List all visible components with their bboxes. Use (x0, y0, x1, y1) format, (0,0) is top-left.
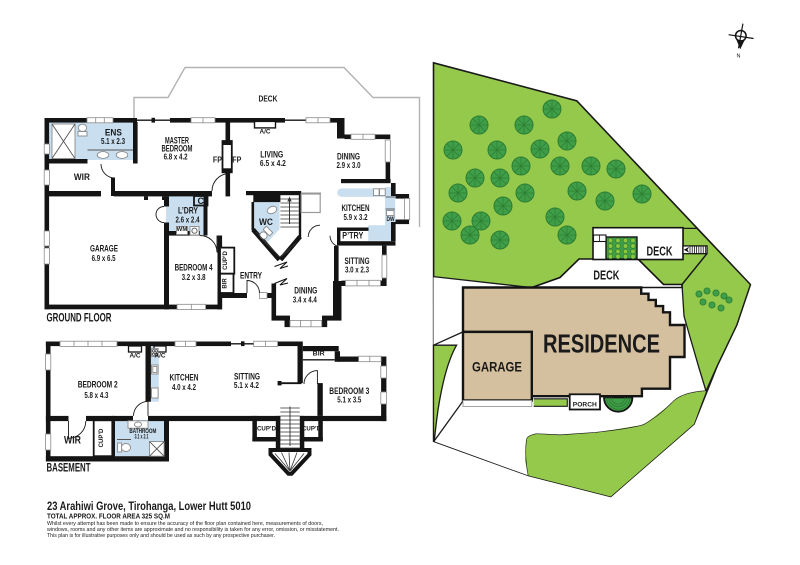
svg-text:GROUND FLOOR: GROUND FLOOR (47, 311, 112, 325)
svg-text:CUP’D: CUP’D (223, 251, 229, 270)
svg-text:CUP’D: CUP’D (302, 427, 322, 433)
svg-text:2.9 x 3.0: 2.9 x 3.0 (337, 161, 361, 170)
svg-text:BIR: BIR (223, 278, 229, 289)
svg-text:5.1 x 2.3: 5.1 x 2.3 (101, 137, 125, 146)
svg-text:This plan is for illustrative: This plan is for illustrative purposes o… (47, 533, 275, 539)
svg-text:5.1 x 4.2: 5.1 x 4.2 (234, 381, 259, 390)
svg-text:CUP’D: CUP’D (257, 427, 277, 433)
svg-text:N: N (737, 54, 741, 60)
svg-text:4.0 x 4.2: 4.0 x 4.2 (172, 383, 196, 392)
svg-text:ENS: ENS (105, 128, 122, 138)
svg-text:DW: DW (387, 217, 395, 223)
svg-text:GARAGE: GARAGE (90, 244, 118, 254)
svg-text:KITCHEN: KITCHEN (342, 203, 370, 213)
svg-text:BEDROOM 2: BEDROOM 2 (78, 380, 118, 390)
svg-text:3.1 x 2.1: 3.1 x 2.1 (135, 435, 149, 441)
svg-text:3.0 x 2.3: 3.0 x 2.3 (345, 266, 369, 275)
svg-text:WM: WM (177, 227, 188, 233)
svg-text:C: C (197, 196, 204, 206)
svg-text:SITTING: SITTING (345, 256, 370, 266)
svg-text:WC: WC (259, 217, 273, 227)
svg-text:5.8 x 4.3: 5.8 x 4.3 (84, 391, 108, 400)
svg-text:A/C: A/C (260, 130, 272, 136)
svg-text:DECK: DECK (593, 268, 619, 283)
svg-text:P’TRY: P’TRY (342, 230, 363, 240)
svg-text:CUP’D: CUP’D (99, 428, 105, 447)
svg-text:6.8 x 4.2: 6.8 x 4.2 (164, 153, 188, 162)
svg-text:A/C: A/C (155, 354, 167, 360)
svg-text:ENTRY: ENTRY (240, 271, 262, 281)
svg-text:PORCH: PORCH (573, 403, 597, 409)
svg-text:KITCHEN: KITCHEN (170, 373, 199, 383)
svg-text:BEDROOM 3: BEDROOM 3 (329, 386, 369, 396)
svg-text:DECK: DECK (259, 94, 279, 104)
svg-text:FP: FP (213, 156, 223, 165)
svg-text:5.9 x 3.2: 5.9 x 3.2 (344, 213, 368, 222)
svg-text:3.4 x 4.4: 3.4 x 4.4 (293, 296, 317, 305)
svg-text:BEDROOM 4: BEDROOM 4 (175, 263, 213, 273)
svg-text:RESIDENCE: RESIDENCE (543, 331, 660, 359)
svg-text:WIR: WIR (74, 172, 90, 182)
svg-text:3.2 x 3.8: 3.2 x 3.8 (182, 273, 206, 282)
svg-text:WIR: WIR (64, 435, 81, 447)
svg-text:TOTAL APPROX. FLOOR AREA 325 S: TOTAL APPROX. FLOOR AREA 325 SQ.M (47, 511, 170, 520)
svg-text:GARAGE: GARAGE (472, 360, 522, 375)
svg-text:DECK: DECK (647, 244, 673, 259)
svg-text:6.9 x 6.5: 6.9 x 6.5 (92, 254, 116, 263)
svg-text:DINING: DINING (294, 286, 317, 296)
svg-text:FP: FP (232, 156, 242, 165)
svg-text:5.1 x 3.5: 5.1 x 3.5 (337, 396, 361, 405)
svg-text:6.5 x 4.2: 6.5 x 4.2 (260, 159, 286, 168)
svg-text:BASEMENT: BASEMENT (47, 461, 91, 475)
svg-text:A/C: A/C (130, 354, 142, 360)
svg-text:SITTING: SITTING (234, 372, 260, 382)
svg-text:2.6 x 2.4: 2.6 x 2.4 (176, 216, 200, 225)
svg-text:L’DRY: L’DRY (178, 206, 198, 216)
svg-text:BIR: BIR (313, 352, 326, 358)
